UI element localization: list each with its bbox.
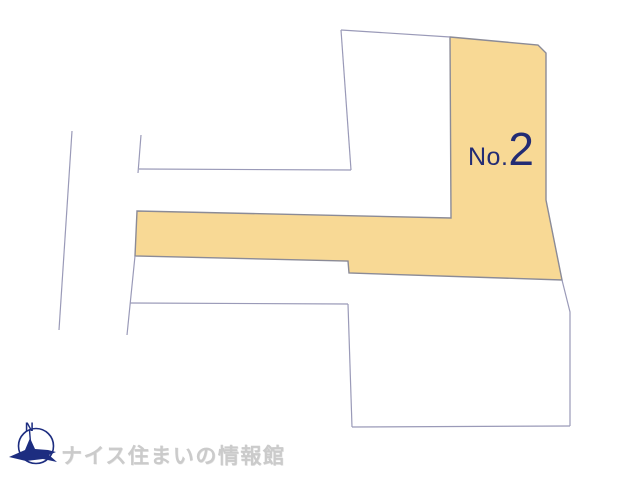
boundary-line-lower-south	[352, 426, 570, 427]
boundary-line-upper-west	[341, 30, 351, 170]
boundary-line-lower-west	[348, 304, 352, 427]
boundary-line-upper-left-stub	[138, 135, 141, 173]
boundary-line-lower-east	[562, 280, 570, 426]
boundary-line-far-west	[59, 131, 72, 330]
lot-number-value: 2	[508, 126, 534, 172]
lot-number-label: No.2	[468, 126, 534, 172]
boundary-line-lower-left-stub	[127, 256, 135, 335]
bird-silhouette	[9, 438, 57, 462]
brand-text: ナイス住まいの情報館	[61, 440, 285, 470]
compass-bird-icon: N	[6, 418, 66, 478]
plot-map-page: No.2 N ナイス住まいの情報館	[0, 0, 640, 480]
plot-map	[0, 0, 640, 480]
lot-number-prefix: No.	[468, 143, 508, 172]
boundary-line-mid-horizontal	[139, 169, 351, 170]
boundary-line-upper-north	[341, 30, 450, 37]
boundary-line-lower-north	[130, 303, 348, 304]
